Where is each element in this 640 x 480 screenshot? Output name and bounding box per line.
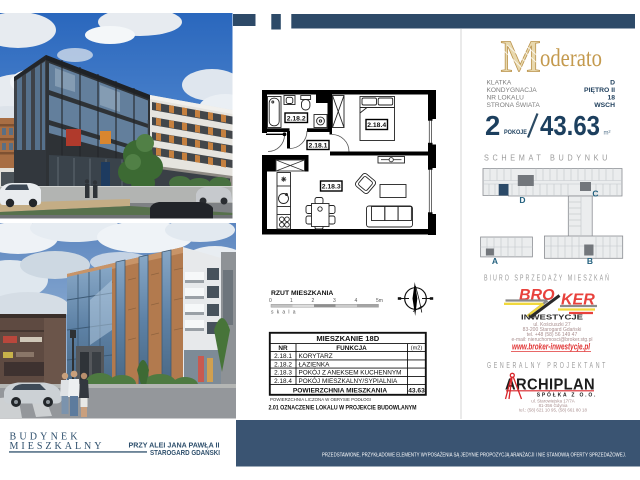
- svg-text:MIESZKANIE 18D: MIESZKANIE 18D: [316, 334, 379, 343]
- svg-text:POKÓJ MIESZKALNY/SYPIALNIA: POKÓJ MIESZKALNY/SYPIALNIA: [299, 376, 398, 385]
- svg-text:0: 0: [269, 298, 272, 304]
- svg-text:SPÓŁKA Z O.O.: SPÓŁKA Z O.O.: [537, 391, 597, 399]
- svg-text:tel.: (58) 621 10 95, (58) 661: tel.: (58) 621 10 95, (58) 661 80 18: [519, 407, 587, 412]
- svg-text:5m: 5m: [376, 298, 383, 304]
- svg-text:D: D: [519, 195, 525, 205]
- svg-text:2: 2: [312, 298, 315, 304]
- svg-text:2.01 OZNACZENIE LOKALU W PROJE: 2.01 OZNACZENIE LOKALU W PROJEKCIE BUDOW…: [269, 405, 417, 412]
- svg-text:www.broker-inwestycje.pl: www.broker-inwestycje.pl: [512, 342, 590, 352]
- svg-text:KLATKA: KLATKA: [487, 79, 512, 86]
- svg-text:D: D: [610, 79, 615, 86]
- svg-text:2.18.4: 2.18.4: [274, 378, 292, 385]
- svg-text:INWESTYCJE: INWESTYCJE: [521, 313, 583, 322]
- svg-text:2.18.3: 2.18.3: [322, 184, 341, 191]
- svg-text:PRZEDSTAWIONE, PRZYKŁADOWE ELE: PRZEDSTAWIONE, PRZYKŁADOWE ELEMENTY WYPO…: [322, 452, 626, 459]
- svg-text:WSCH: WSCH: [594, 102, 615, 109]
- svg-text:43.63: 43.63: [540, 110, 600, 141]
- svg-text:B: B: [587, 256, 593, 266]
- svg-text:M: M: [500, 31, 541, 82]
- svg-text:2.18.3: 2.18.3: [274, 370, 292, 377]
- svg-text:4: 4: [355, 298, 358, 304]
- svg-text:GENERALNY PROJEKTANT: GENERALNY PROJEKTANT: [487, 361, 608, 370]
- svg-text:KONDYGNACJA: KONDYGNACJA: [487, 87, 538, 94]
- svg-text:RZUT MIESZKANIA: RZUT MIESZKANIA: [271, 290, 333, 297]
- svg-text:NR: NR: [278, 345, 288, 352]
- svg-text:2.18.4: 2.18.4: [367, 122, 386, 129]
- svg-text:POWIERZCHNIA MIESZKANIA: POWIERZCHNIA MIESZKANIA: [293, 387, 388, 394]
- svg-text:2.18.1: 2.18.1: [309, 143, 328, 150]
- svg-text:2.18.2: 2.18.2: [274, 361, 292, 368]
- svg-text:MIESZKALNY: MIESZKALNY: [10, 441, 102, 452]
- svg-text:POKOJE: POKOJE: [504, 129, 527, 136]
- svg-text:PIĘTRO II: PIĘTRO II: [584, 87, 615, 94]
- svg-text:PRZY ALEI JANA PAWŁA II: PRZY ALEI JANA PAWŁA II: [129, 443, 220, 450]
- svg-text:STAROGARD GDAŃSKI: STAROGARD GDAŃSKI: [150, 448, 220, 457]
- svg-text:C: C: [592, 189, 598, 199]
- svg-text:SCHEMAT BUDYNKU: SCHEMAT BUDYNKU: [484, 154, 611, 163]
- svg-text:STRONA ŚWIATA: STRONA ŚWIATA: [487, 100, 541, 109]
- svg-text:1: 1: [290, 298, 293, 304]
- svg-text:m²: m²: [604, 130, 611, 136]
- svg-text:ŁAZIENKA: ŁAZIENKA: [299, 361, 331, 368]
- svg-text:POKÓJ Z ANEKSEM KUCHENNYM: POKÓJ Z ANEKSEM KUCHENNYM: [299, 368, 402, 377]
- svg-text:A: A: [492, 256, 498, 266]
- svg-text:3: 3: [333, 298, 336, 304]
- svg-text:2: 2: [485, 110, 500, 141]
- svg-text:KORYTARZ: KORYTARZ: [299, 353, 333, 360]
- svg-text:43.63: 43.63: [408, 387, 425, 394]
- svg-text:NR LOKALU: NR LOKALU: [487, 94, 525, 101]
- svg-text:POWIERZCHNIA LICZONA W OBRYSIE: POWIERZCHNIA LICZONA W OBRYSIE PODŁOGI: [270, 397, 371, 402]
- svg-text:2.18.2: 2.18.2: [287, 115, 306, 122]
- svg-text:skala: skala: [271, 310, 299, 316]
- svg-text:18: 18: [607, 94, 615, 101]
- svg-text:(m2): (m2): [411, 346, 423, 352]
- svg-text:oderato: oderato: [540, 45, 602, 72]
- svg-text:2.18.1: 2.18.1: [274, 353, 292, 360]
- svg-text:FUNKCJA: FUNKCJA: [336, 345, 367, 352]
- svg-text:BIURO SPRZEDAŻY MIESZKAŃ: BIURO SPRZEDAŻY MIESZKAŃ: [484, 274, 611, 283]
